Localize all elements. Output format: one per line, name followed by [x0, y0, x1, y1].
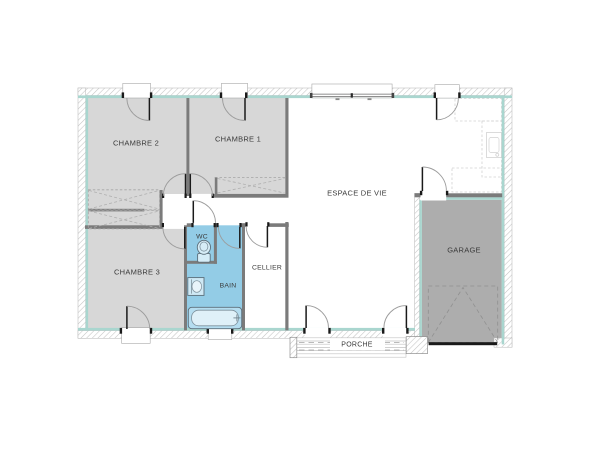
window-chambre2 [123, 83, 151, 98]
room-label-bain: BAIN [220, 283, 237, 290]
room-label-espace-de-vie: ESPACE DE VIE [327, 189, 387, 198]
porch-door-right-opening [383, 328, 408, 339]
room-label-chambre1: CHAMBRE 1 [215, 135, 261, 144]
floor-plan-svg [0, 0, 600, 450]
room-label-chambre2: CHAMBRE 2 [113, 139, 159, 148]
closet-floor [88, 194, 160, 229]
room-label-garage: GARAGE [447, 246, 481, 255]
floor-plan-canvas: CHAMBRE 2 CHAMBRE 1 CHAMBRE 3 WC BAIN CE… [0, 0, 600, 450]
room-label-cellier: CELLIER [252, 265, 282, 272]
french-door-chambre3 [122, 328, 151, 344]
window-chambre1 [221, 83, 247, 98]
bathtub-icon [188, 307, 241, 328]
toilet-icon [197, 240, 210, 262]
chambre1-floor [189, 98, 285, 194]
garage-door-opening [421, 193, 447, 201]
kitchen-sink-icon [487, 133, 502, 158]
room-label-porche: PORCHE [337, 342, 376, 349]
large-window-frame [312, 93, 392, 100]
chambre3-floor [88, 229, 184, 328]
garage-floor [422, 200, 502, 343]
sink-icon [188, 278, 204, 296]
room-label-chambre3: CHAMBRE 3 [114, 268, 160, 277]
window-bain [208, 328, 232, 340]
room-label-wc: WC [196, 234, 208, 241]
room-fills [88, 98, 502, 343]
back-door-opening [435, 85, 459, 99]
porch-door-left-opening [305, 328, 330, 339]
porch-pillar-right [406, 337, 427, 354]
porch-pillar-left [290, 337, 297, 357]
